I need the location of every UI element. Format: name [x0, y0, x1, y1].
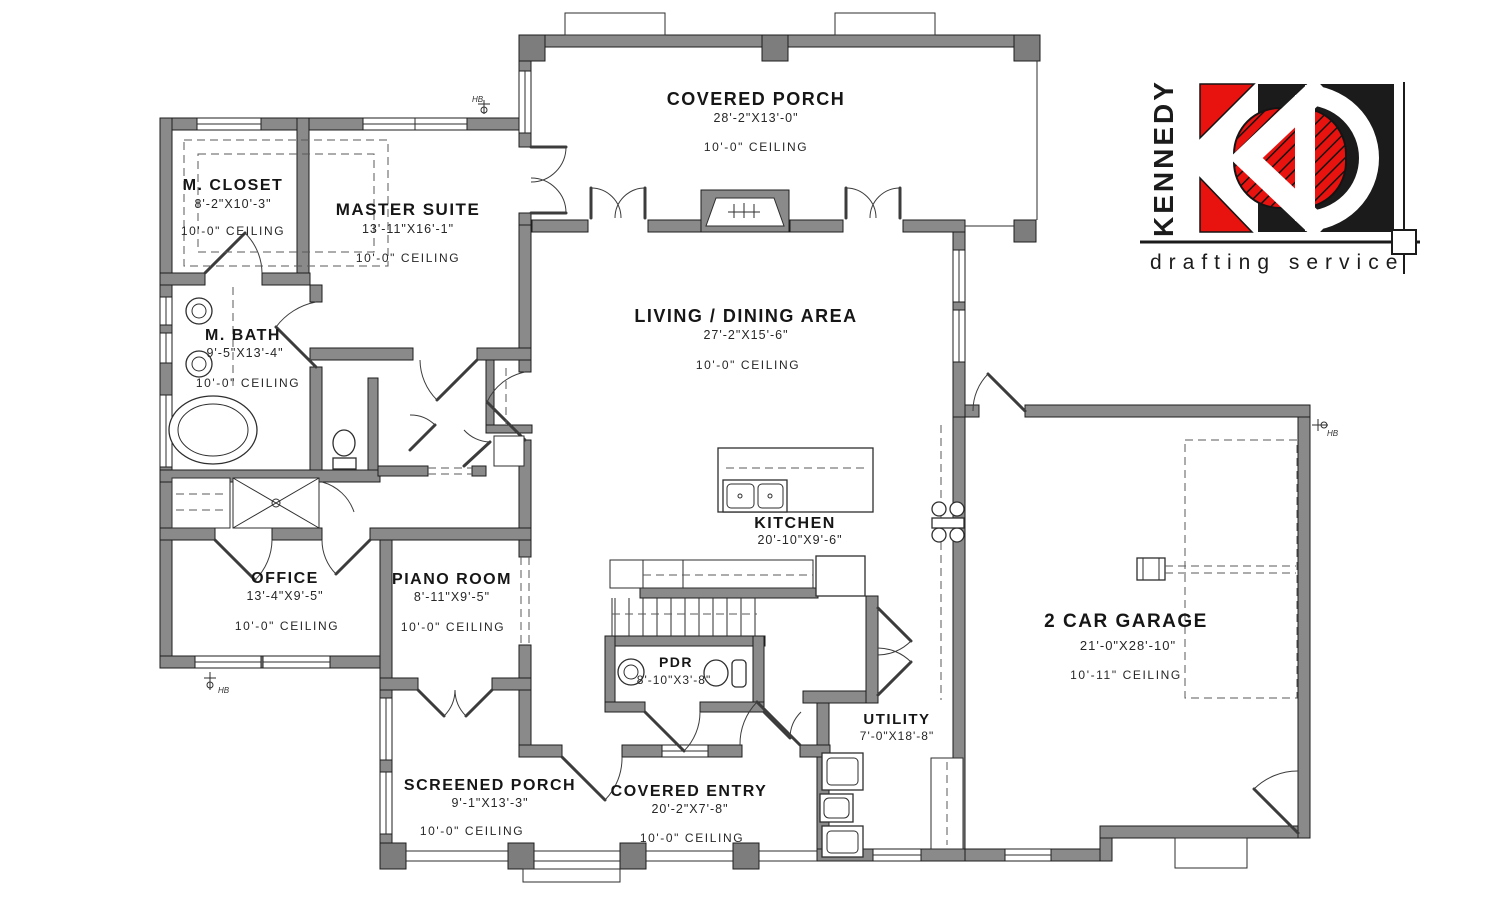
dim-living-dining: 27'-2"X15'-6" — [703, 328, 788, 342]
label-screened-porch: SCREENED PORCH — [404, 777, 576, 794]
shower — [233, 478, 319, 528]
dim-office: 13'-4"X9'-5" — [246, 589, 323, 603]
garden-tub — [169, 396, 257, 464]
svg-text:HB: HB — [472, 95, 484, 104]
linen-closet — [172, 478, 230, 528]
dim-m-bath: 9'-5"X13'-4" — [206, 346, 283, 360]
label-master-suite: MASTER SUITE — [336, 200, 481, 219]
ceiling-office: 10'-0" CEILING — [235, 619, 339, 633]
label-m-closet: M. CLOSET — [183, 177, 284, 194]
vanity-sink — [186, 298, 212, 324]
label-kitchen: KITCHEN — [754, 515, 836, 532]
kennedy-logo: KENNEDY drafting service — [1140, 79, 1420, 274]
fireplace — [701, 190, 789, 232]
water-heater — [1137, 558, 1165, 580]
ceiling-living-dining: 10'-0" CEILING — [696, 358, 800, 372]
ceiling-m-bath: 10'-0" CEILING — [196, 376, 300, 390]
floor-plan-drawing: HB HB HB M. CLOSET 8'-2"X10'-3" 10'-0" C… — [0, 0, 1500, 900]
ceiling-covered-entry: 10'-0" CEILING — [640, 831, 744, 845]
kitchen-sink — [723, 480, 787, 512]
hose-bibb-icon: HB — [472, 95, 490, 114]
cooktop — [932, 502, 964, 542]
kitchen-counter — [610, 560, 813, 588]
ceiling-screened-porch: 10'-0" CEILING — [420, 824, 524, 838]
logo-tagline-text: drafting service — [1150, 251, 1404, 274]
label-covered-porch: COVERED PORCH — [667, 89, 846, 109]
logo-brand-text: KENNEDY — [1148, 79, 1179, 237]
linen-cabinet — [494, 436, 524, 466]
dim-garage: 21'-0"X28'-10" — [1080, 638, 1176, 653]
dim-pdr: 8'-10"X3'-8" — [637, 673, 711, 687]
label-m-bath: M. BATH — [205, 327, 281, 344]
dim-kitchen: 20'-10"X9'-6" — [757, 533, 842, 547]
dim-utility: 7'-0"X18'-8" — [860, 729, 934, 743]
hose-bibb-icon: HB — [204, 672, 230, 695]
toilet — [333, 430, 356, 469]
dim-piano-room: 8'-11"X9'-5" — [414, 590, 490, 604]
dim-screened-porch: 9'-1"X13'-3" — [451, 796, 528, 810]
ceiling-piano-room: 10'-0" CEILING — [401, 620, 505, 634]
svg-text:HB: HB — [218, 686, 230, 695]
dim-covered-entry: 20'-2"X7'-8" — [651, 802, 728, 816]
ceiling-garage: 10'-11" CEILING — [1070, 668, 1182, 682]
refrigerator — [816, 556, 865, 596]
stairs — [612, 598, 757, 636]
label-piano-room: PIANO ROOM — [392, 571, 512, 588]
dim-m-closet: 8'-2"X10'-3" — [194, 197, 271, 211]
floor-plan-sheet: HB HB HB M. CLOSET 8'-2"X10'-3" 10'-0" C… — [0, 0, 1500, 900]
dim-master-suite: 13'-11"X16'-1" — [362, 222, 454, 236]
label-garage: 2 CAR GARAGE — [1044, 611, 1208, 632]
ceiling-covered-porch: 10'-0" CEILING — [704, 140, 808, 154]
svg-text:HB: HB — [1327, 429, 1339, 438]
ceiling-master-suite: 10'-0" CEILING — [356, 251, 460, 265]
label-office: OFFICE — [251, 570, 319, 587]
utility-fixtures — [820, 753, 963, 857]
label-covered-entry: COVERED ENTRY — [611, 783, 768, 800]
garage-fixtures — [1137, 440, 1297, 698]
label-living-dining: LIVING / DINING AREA — [634, 306, 857, 326]
hose-bibb-icon: HB — [1312, 419, 1339, 438]
dim-covered-porch: 28'-2"X13'-0" — [713, 111, 798, 125]
ceiling-m-closet: 10'-0" CEILING — [181, 224, 285, 238]
garage-storage-area — [1185, 440, 1297, 698]
label-utility: UTILITY — [863, 711, 930, 728]
label-pdr: PDR — [659, 654, 693, 670]
